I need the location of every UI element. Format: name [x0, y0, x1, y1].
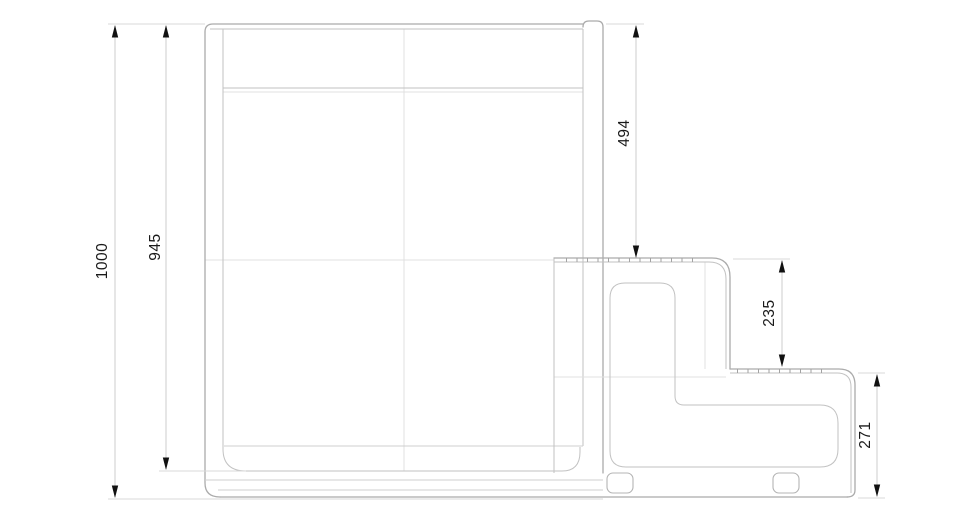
dimension-label-945: 945	[147, 233, 164, 260]
left-wall-inner	[223, 29, 246, 471]
arrowhead-down-icon	[779, 355, 785, 368]
dimension-upper-section: 494	[606, 24, 644, 258]
arrowhead-up-icon	[112, 25, 118, 38]
arrowhead-down-icon	[633, 246, 639, 259]
inner-recess-outline	[610, 283, 838, 467]
arrowhead-up-icon	[874, 374, 880, 387]
dimension-overall-height: 1000	[94, 24, 603, 499]
dimension-label-1000: 1000	[94, 243, 111, 279]
technical-drawing-canvas: 1000 945 494 235 271	[0, 0, 980, 522]
under-tray-line	[246, 447, 580, 471]
dimension-middle-section: 235	[733, 259, 790, 367]
arrowhead-up-icon	[163, 25, 169, 38]
dimension-label-271: 271	[857, 421, 874, 448]
arrowhead-down-icon	[112, 486, 118, 499]
dimension-label-494: 494	[616, 119, 633, 146]
arrowhead-down-icon	[163, 458, 169, 471]
arrowhead-up-icon	[633, 25, 639, 38]
upper-block-outer-edge	[554, 258, 730, 369]
foot-left	[607, 473, 633, 493]
foot-right	[773, 473, 799, 493]
arrowhead-down-icon	[874, 485, 880, 498]
upper-block-inner-edge	[554, 262, 726, 369]
left-wall-outer	[205, 32, 220, 497]
arrowhead-up-icon	[779, 260, 785, 273]
dimension-label-235: 235	[761, 299, 778, 326]
side-elevation-drawing: 1000 945 494 235 271	[0, 0, 980, 522]
right-wall-outer	[583, 21, 603, 473]
step-unit	[554, 258, 855, 497]
dimension-lower-section: 271	[857, 373, 885, 498]
lid-top-edge	[205, 24, 583, 32]
